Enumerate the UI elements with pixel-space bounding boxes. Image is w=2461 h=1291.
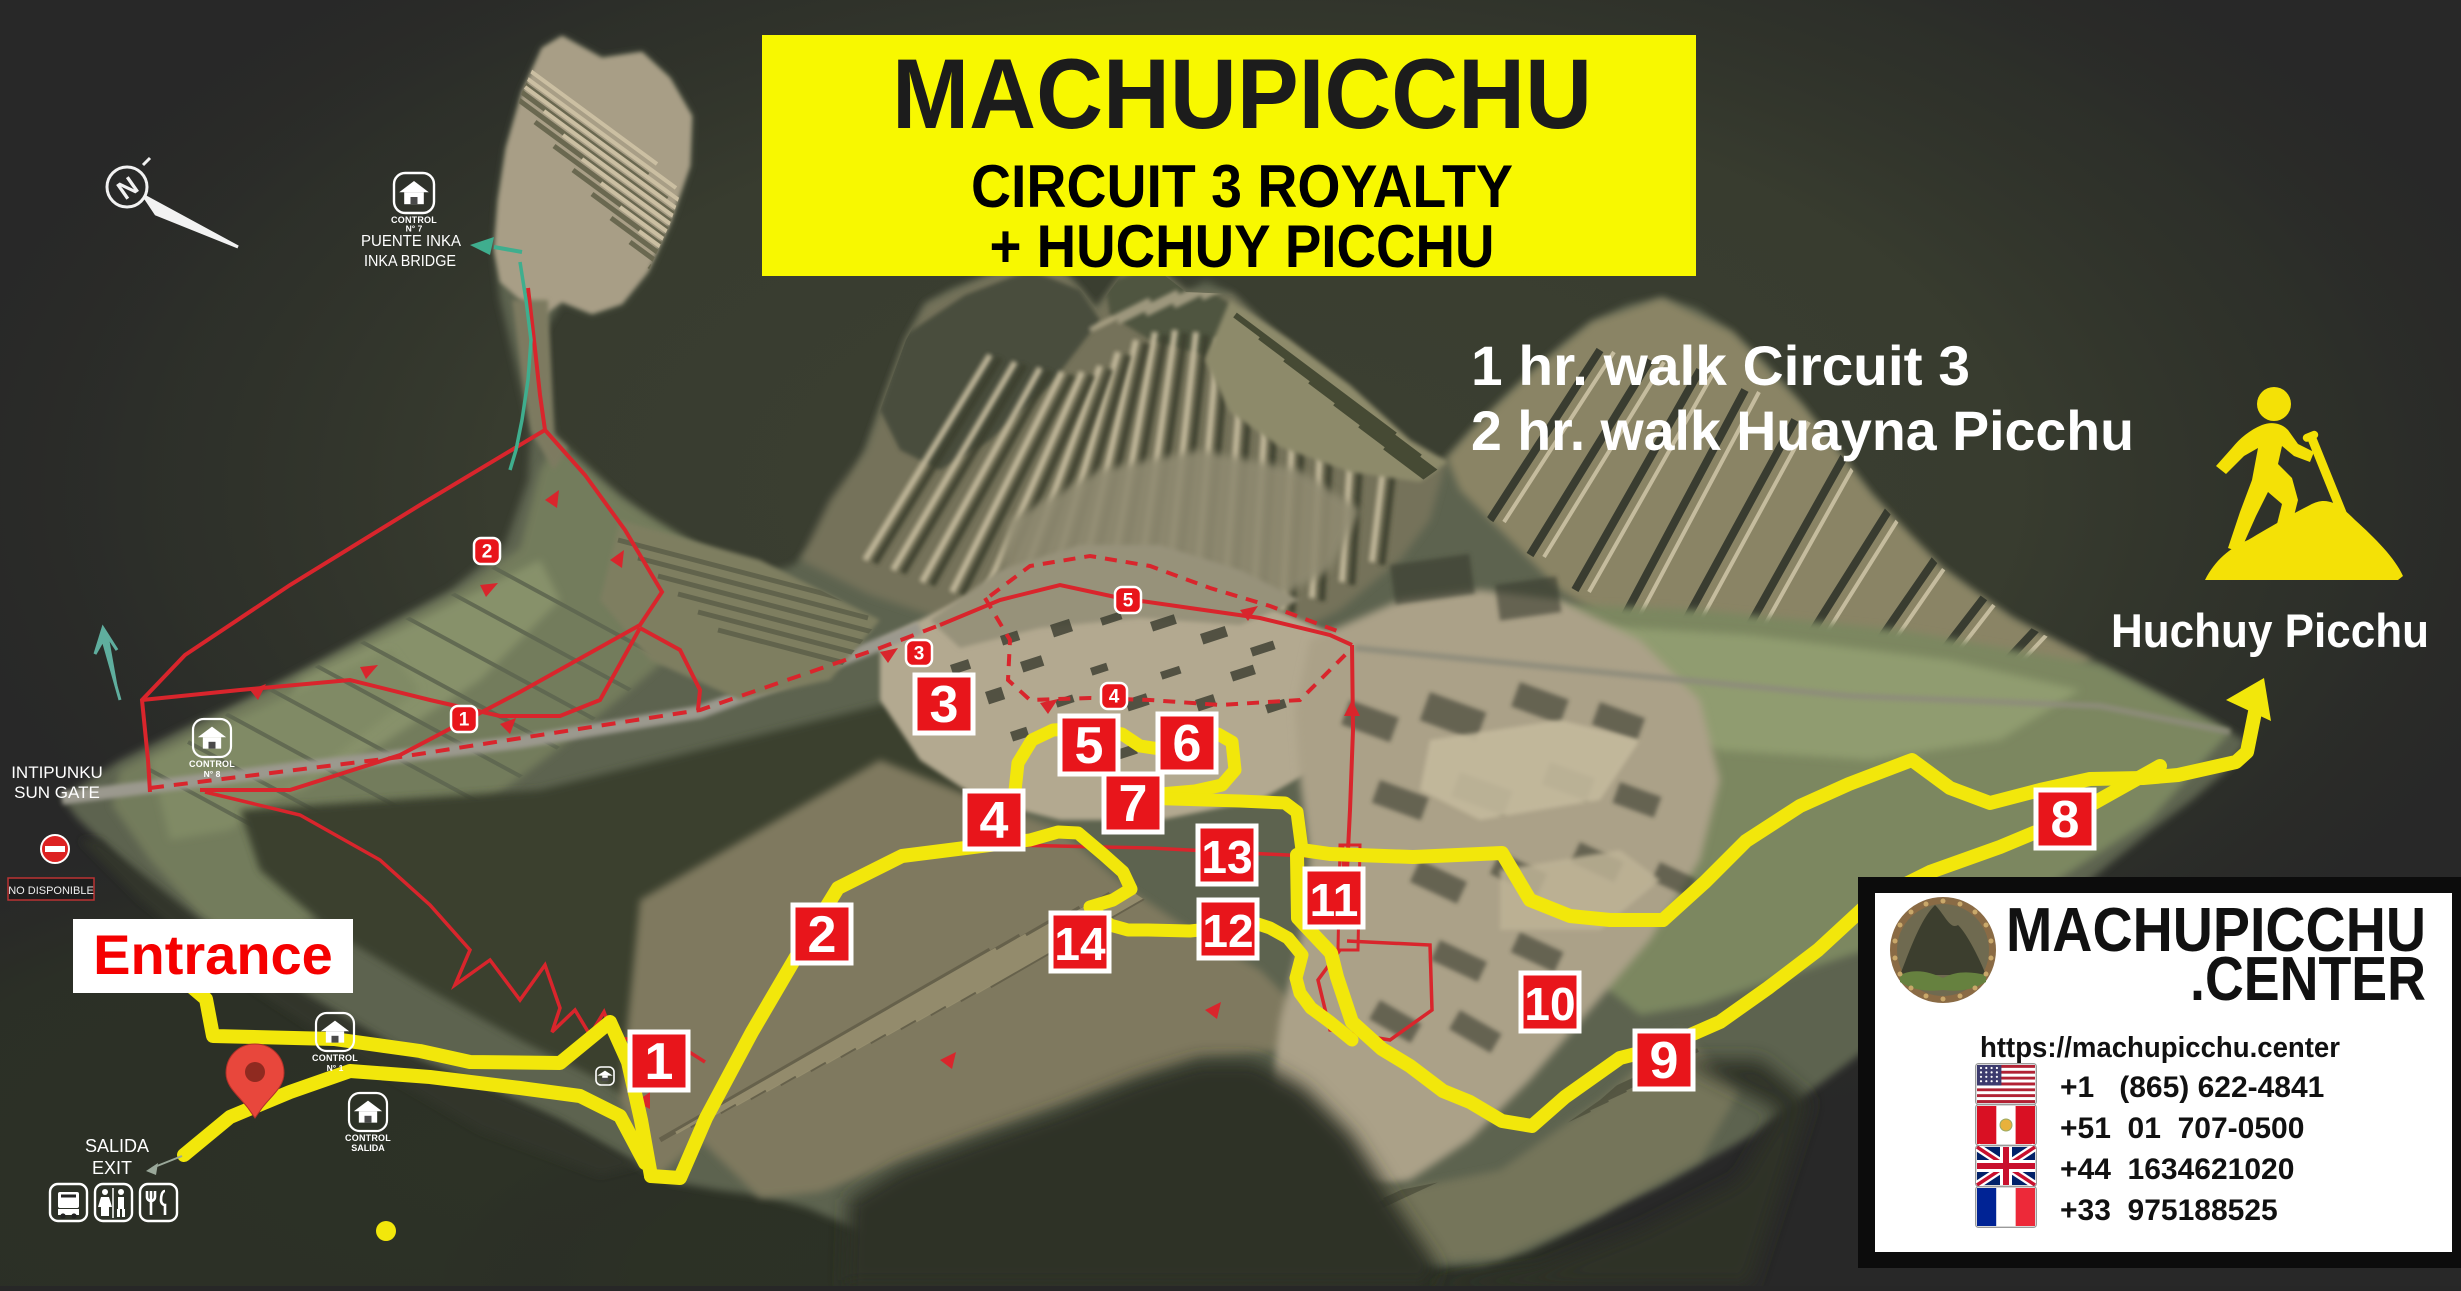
svg-text:3: 3	[930, 676, 959, 734]
svg-text:CIRCUIT 3 ROYALTY: CIRCUIT 3 ROYALTY	[971, 153, 1513, 220]
svg-text:1: 1	[459, 710, 470, 731]
svg-text:1 hr. walk Circuit 3: 1 hr. walk Circuit 3	[1471, 334, 1970, 397]
svg-text:2: 2	[808, 906, 837, 964]
svg-text:N° 7: N° 7	[406, 224, 423, 234]
svg-text:6: 6	[1173, 715, 1202, 773]
svg-text:3: 3	[914, 644, 925, 665]
svg-text:7: 7	[1119, 775, 1148, 833]
svg-text:10: 10	[1524, 978, 1575, 1030]
svg-text:Huchuy Picchu: Huchuy Picchu	[2111, 604, 2429, 657]
svg-text:4: 4	[1109, 687, 1120, 708]
svg-text:+44 1634621020: +44 1634621020	[2060, 1153, 2294, 1186]
svg-text:CONTROL: CONTROL	[312, 1053, 358, 1063]
svg-text:SALIDA: SALIDA	[85, 1136, 149, 1156]
svg-text:2: 2	[482, 542, 493, 563]
svg-text:+33 975188525: +33 975188525	[2060, 1194, 2278, 1227]
svg-text:N° 8: N° 8	[204, 769, 221, 779]
svg-text:+1 (865) 622-4841: +1 (865) 622-4841	[2060, 1071, 2324, 1104]
svg-text:SALIDA: SALIDA	[351, 1143, 385, 1153]
svg-text:9: 9	[1650, 1032, 1679, 1090]
svg-text:5: 5	[1075, 717, 1104, 775]
svg-text:CONTROL: CONTROL	[345, 1133, 391, 1143]
svg-text:2 hr. walk Huayna Picchu: 2 hr. walk Huayna Picchu	[1471, 399, 2134, 462]
svg-text:11: 11	[1310, 874, 1359, 926]
svg-text:14: 14	[1054, 918, 1106, 970]
svg-text:INKA BRIDGE: INKA BRIDGE	[364, 253, 456, 270]
svg-text:.CENTER: .CENTER	[2190, 945, 2426, 1014]
svg-text:NO DISPONIBLE: NO DISPONIBLE	[8, 885, 94, 897]
svg-text:SUN GATE: SUN GATE	[14, 783, 100, 802]
svg-text:13: 13	[1201, 831, 1252, 883]
svg-text:https://machupicchu.center: https://machupicchu.center	[1980, 1032, 2340, 1064]
svg-text:PUENTE INKA: PUENTE INKA	[361, 233, 461, 250]
svg-text:N° 1: N° 1	[327, 1063, 344, 1073]
svg-text:INTIPUNKU: INTIPUNKU	[11, 763, 103, 782]
svg-text:+51 01 707-0500: +51 01 707-0500	[2060, 1112, 2304, 1145]
svg-text:EXIT: EXIT	[92, 1158, 132, 1178]
svg-text:Entrance: Entrance	[93, 923, 333, 986]
svg-text:4: 4	[980, 792, 1009, 850]
svg-text:1: 1	[645, 1033, 674, 1091]
svg-text:12: 12	[1202, 905, 1253, 957]
svg-text:+ HUCHUY PICCHU: + HUCHUY PICCHU	[990, 213, 1495, 280]
svg-text:MACHUPICCHU: MACHUPICCHU	[892, 38, 1592, 149]
svg-text:8: 8	[2051, 791, 2080, 849]
svg-text:CONTROL: CONTROL	[189, 759, 235, 769]
svg-text:5: 5	[1123, 591, 1134, 612]
